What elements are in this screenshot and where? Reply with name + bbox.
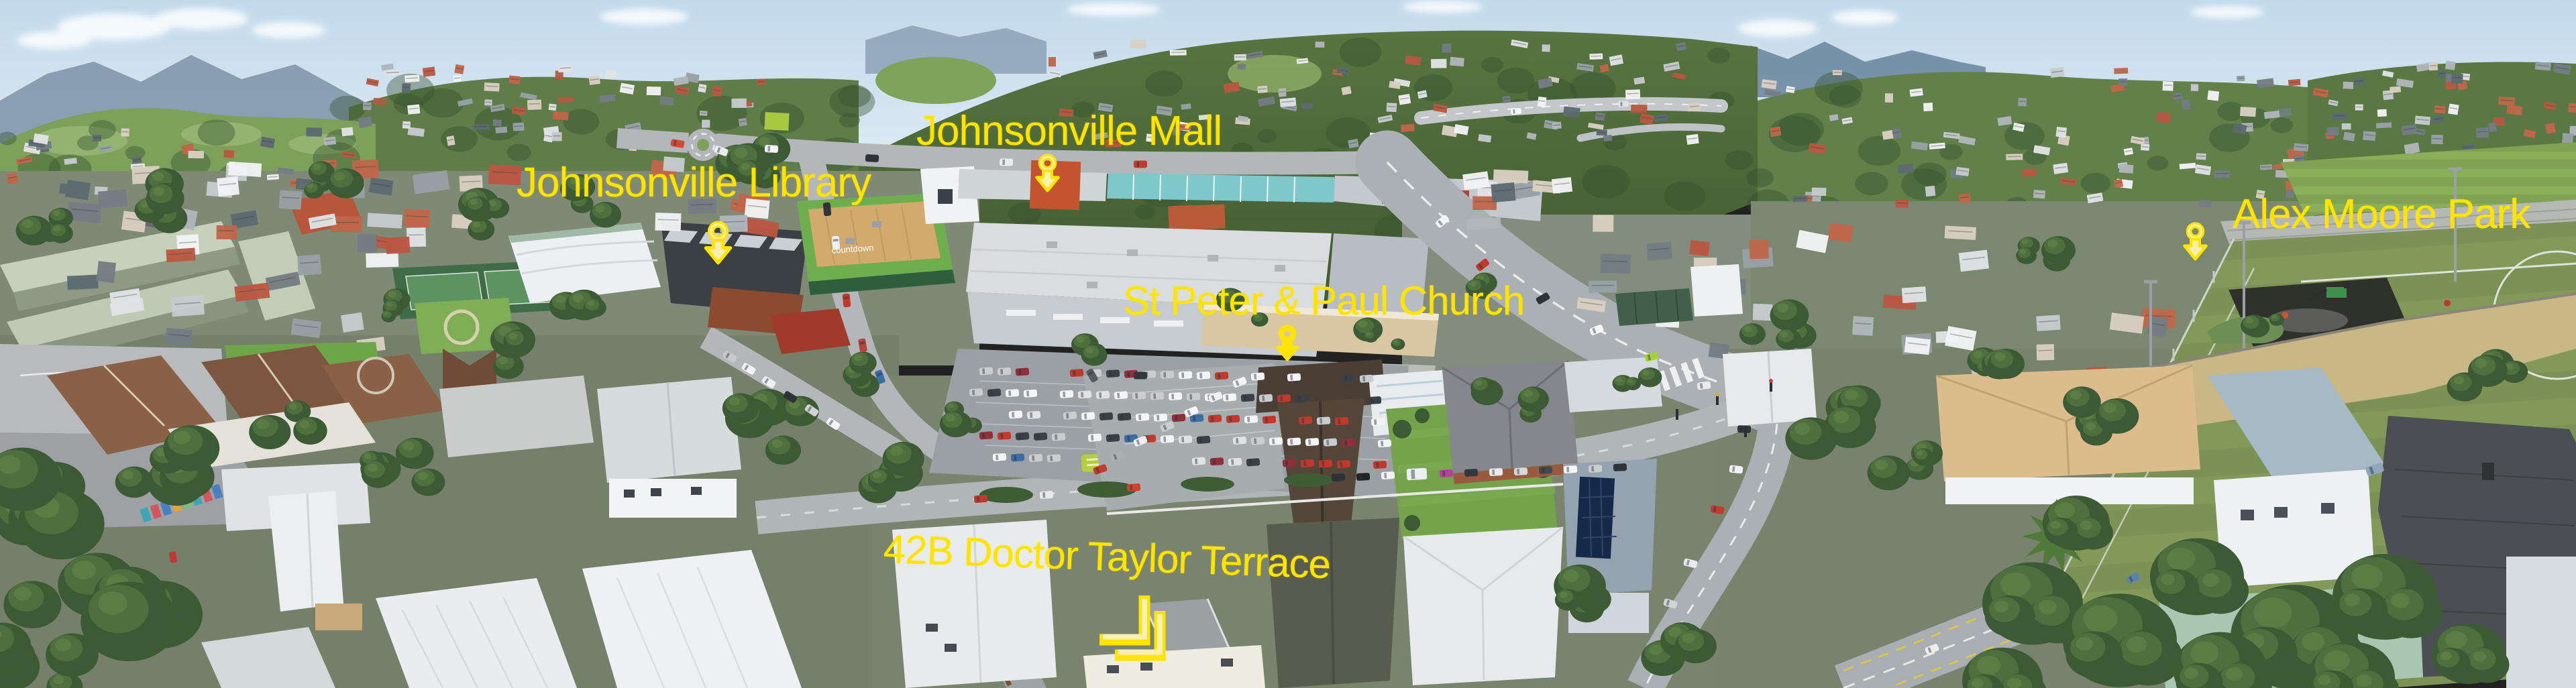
label-st-peter-paul-church: St Peter & Paul Church <box>1123 281 1524 321</box>
label-alex-moore-park: Alex Moore Park <box>2233 194 2530 235</box>
map-pin-icon <box>1032 153 1063 192</box>
map-pin-icon <box>700 220 736 265</box>
label-johnsonville-library: Johnsonville Library <box>517 162 871 204</box>
aerial-photo-panorama: countdown <box>0 0 2576 688</box>
double-chevron-icon <box>1090 585 1174 669</box>
label-johnsonville-mall: Johnsonville Mall <box>916 111 1222 152</box>
map-pin-icon <box>1273 324 1302 361</box>
map-pin-icon <box>2180 221 2211 261</box>
